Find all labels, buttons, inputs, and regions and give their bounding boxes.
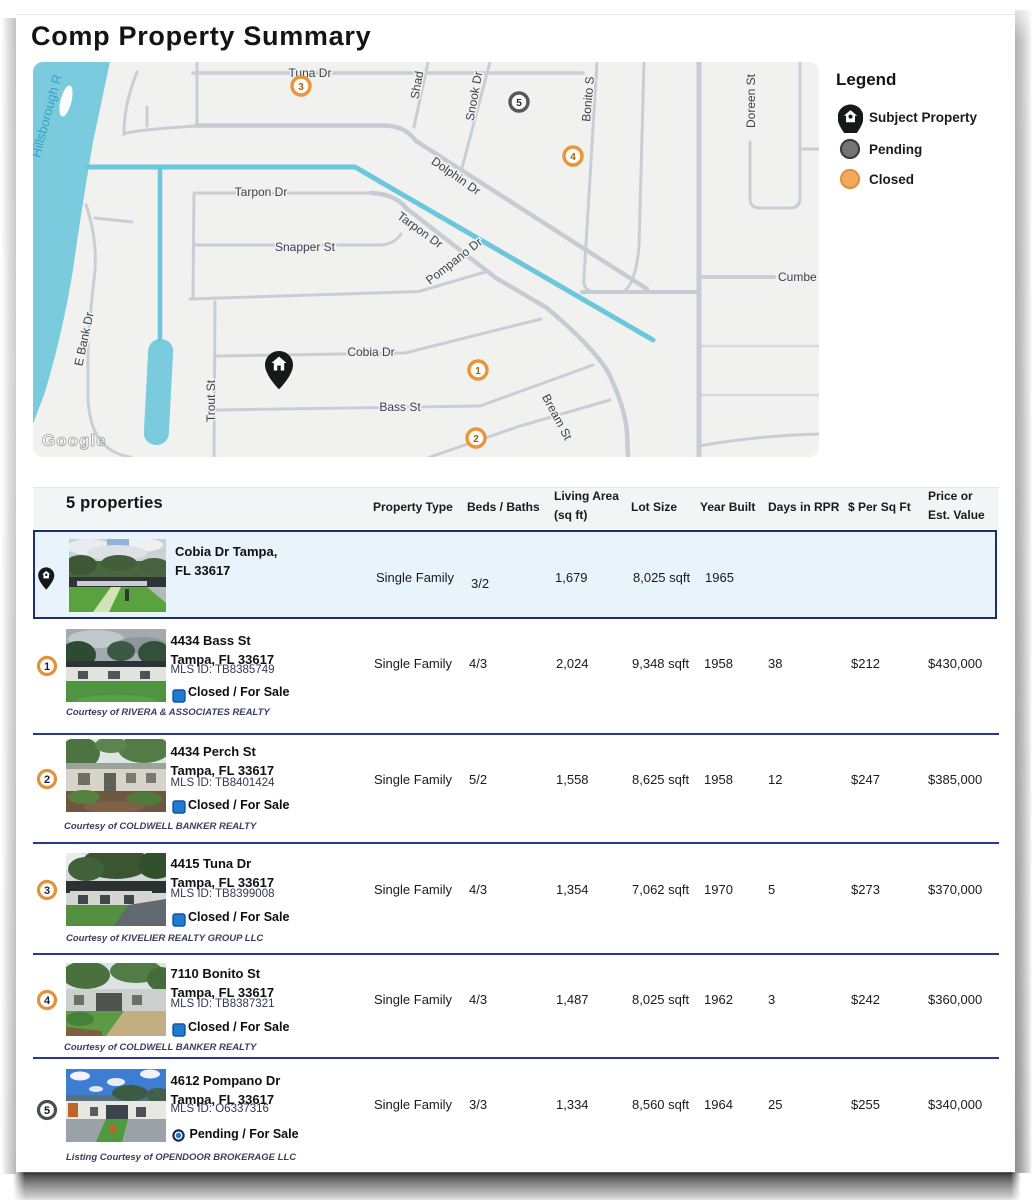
svg-text:4: 4	[44, 995, 51, 1007]
svg-text:2: 2	[473, 434, 479, 445]
svg-text:4: 4	[570, 152, 576, 163]
svg-text:Snapper St: Snapper St	[275, 240, 336, 254]
svg-text:Google: Google	[42, 431, 107, 450]
svg-text:5: 5	[44, 1105, 50, 1117]
svg-text:5: 5	[516, 98, 522, 109]
svg-text:Doreen St: Doreen St	[744, 73, 758, 128]
svg-text:Bass St: Bass St	[379, 400, 421, 414]
svg-text:3: 3	[44, 885, 50, 897]
svg-text:Cumbe: Cumbe	[778, 270, 817, 284]
svg-text:1: 1	[44, 661, 50, 673]
svg-text:1: 1	[475, 366, 481, 377]
svg-text:Trout St: Trout St	[204, 379, 218, 422]
svg-text:3: 3	[298, 82, 304, 93]
svg-text:Tarpon Dr: Tarpon Dr	[235, 185, 288, 199]
svg-text:2: 2	[44, 774, 50, 786]
svg-text:Cobia Dr: Cobia Dr	[347, 345, 394, 359]
